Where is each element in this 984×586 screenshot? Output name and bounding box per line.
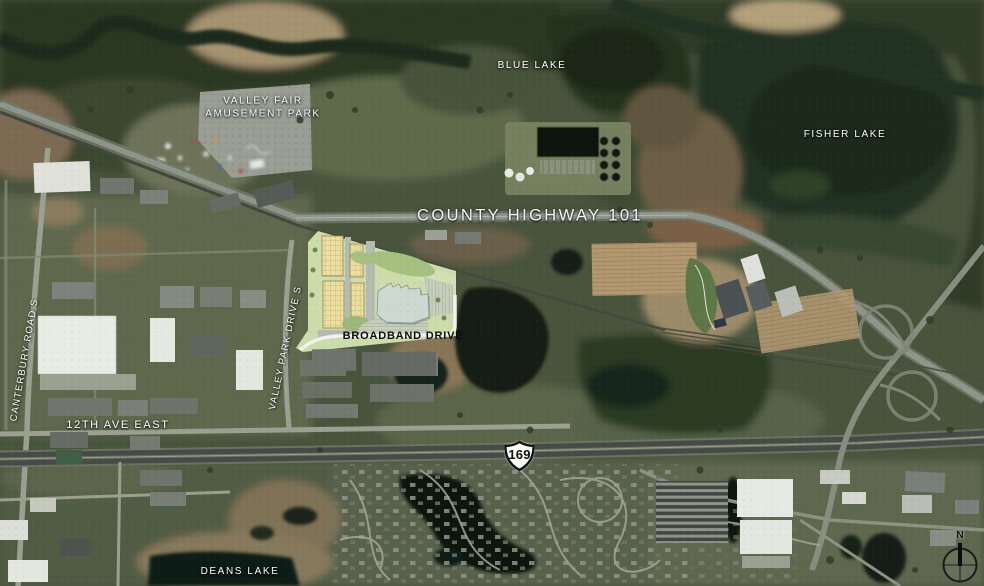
- satellite-terrain: [0, 0, 984, 586]
- label-broadband-drive: BROADBAND DRIVE: [343, 330, 464, 344]
- label-fisher-lake: FISHER LAKE: [804, 129, 887, 142]
- label-valley-fair: VALLEY FAIR AMUSEMENT PARK: [205, 96, 320, 121]
- label-deans-lake: DEANS LAKE: [201, 566, 280, 579]
- label-blue-lake: BLUE LAKE: [498, 60, 567, 73]
- label-12th-ave-east: 12TH AVE EAST: [66, 419, 169, 433]
- label-county-highway-101: COUNTY HIGHWAY 101: [417, 206, 643, 227]
- label-valley-fair-line2: AMUSEMENT PARK: [205, 108, 320, 121]
- aerial-map: BLUE LAKE VALLEY FAIR AMUSEMENT PARK FIS…: [0, 0, 984, 586]
- highway-route-number: 169: [504, 448, 535, 461]
- compass-north-label: N: [938, 531, 982, 541]
- label-valley-fair-line1: VALLEY FAIR: [205, 96, 320, 109]
- compass-rose: N: [938, 531, 982, 586]
- highway-169-shield: 169: [504, 440, 535, 472]
